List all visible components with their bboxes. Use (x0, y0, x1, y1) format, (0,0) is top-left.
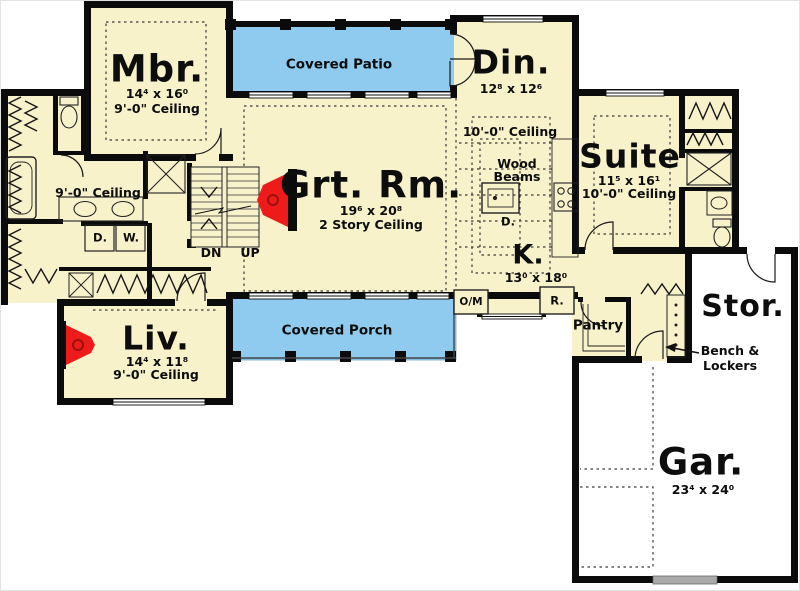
stairs-down-label: DN (201, 247, 222, 260)
refrigerator-label: R. (550, 295, 563, 307)
bench-lockers-label-2: Lockers (703, 360, 757, 373)
stairs-up-label: UP (240, 247, 259, 260)
porch-label: Covered Porch (282, 324, 393, 338)
stor-door (747, 254, 775, 282)
room-title-stor: Stor. (701, 292, 784, 322)
room-title-suite: Suite (579, 140, 681, 173)
bench-lockers-label-1: Bench & (701, 345, 759, 358)
hall-ceiling-label: 9'-0" Ceiling (55, 187, 141, 200)
room-ceiling-suite: 10'-0" Ceiling (582, 188, 676, 201)
room-title-liv: Liv. (122, 322, 190, 355)
room-dims-din: 12⁸ x 12⁶ (480, 83, 543, 96)
garage-storage-line-1 (580, 367, 653, 469)
room-title-grt: Grt. Rm. (280, 167, 462, 204)
kitchen-ceiling-label: 10'-0" Ceiling (463, 126, 557, 139)
room-ceiling-grt: 2 Story Ceiling (319, 219, 423, 232)
oven-microwave-label: O/M (459, 297, 482, 308)
island-dishwasher-label: D. (501, 216, 515, 228)
garage-storage-line-2 (580, 487, 653, 567)
garage-door (653, 576, 717, 584)
room-dims-kitchen: 13⁰ x 18⁰ (505, 272, 568, 285)
room-title-kitchen: K. (512, 242, 543, 269)
room-dims-gar: 23⁴ x 24⁰ (672, 484, 735, 497)
pantry-label: Pantry (573, 319, 623, 333)
room-title-gar: Gar. (658, 444, 744, 481)
room-dims-grt: 19⁶ x 20⁸ (340, 205, 403, 218)
patio-label: Covered Patio (286, 58, 392, 72)
room-title-mbr: Mbr. (110, 51, 204, 88)
wood-beams-label-2: Beams (494, 171, 541, 184)
room-ceiling-liv: 9'-0" Ceiling (113, 369, 199, 382)
dryer-label: D. (93, 232, 107, 244)
room-title-din: Din. (472, 46, 551, 79)
staircase (191, 167, 259, 247)
room-dims-mbr: 14⁴ x 16⁰ (126, 88, 189, 101)
floor-plan: Mbr. 14⁴ x 16⁰ 9'-0" Ceiling Covered Pat… (0, 0, 800, 591)
washer-label: W. (123, 232, 139, 244)
room-ceiling-mbr: 9'-0" Ceiling (114, 103, 200, 116)
